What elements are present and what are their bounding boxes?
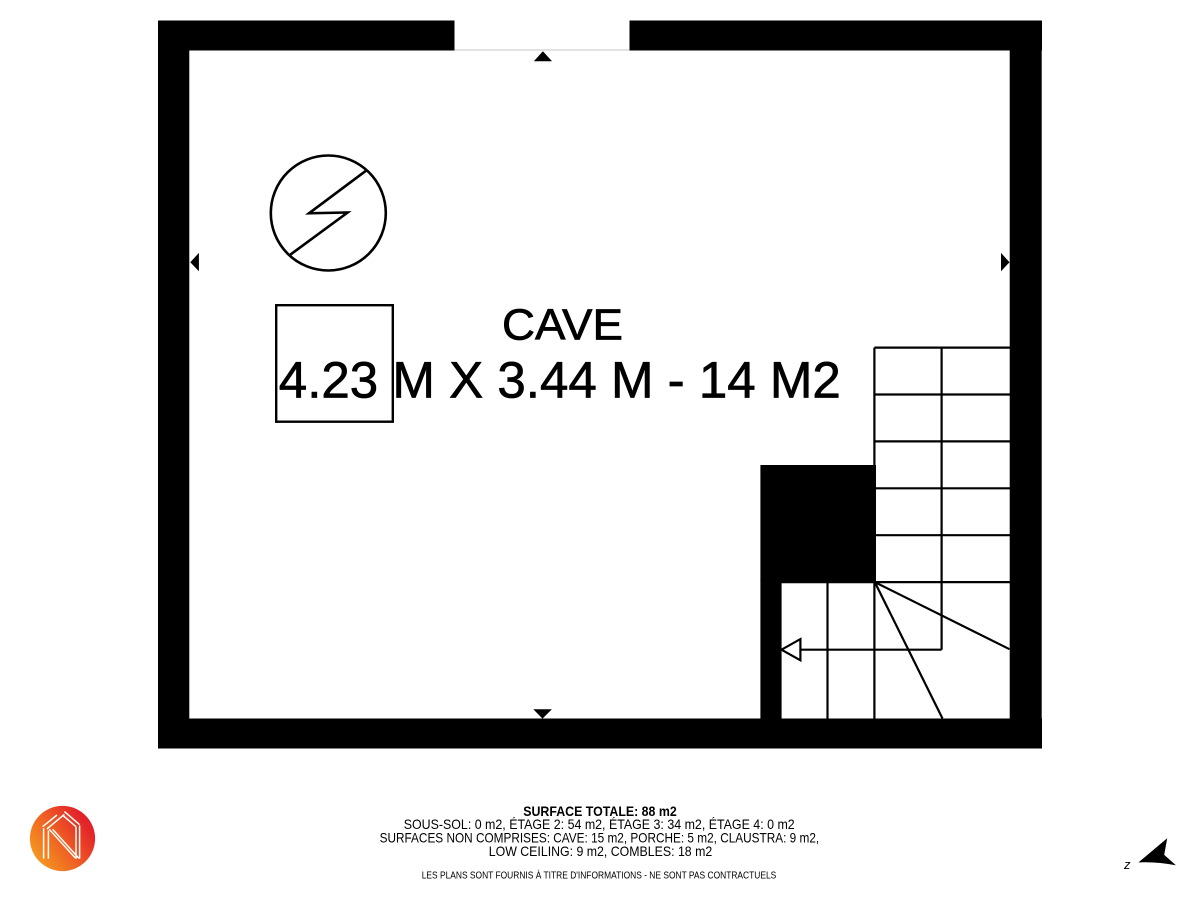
svg-text:LES PLANS SONT FOURNIS À TITRE: LES PLANS SONT FOURNIS À TITRE D'INFORMA…: [422, 868, 777, 881]
svg-text:CAVE: CAVE: [502, 301, 623, 350]
svg-text:LOW CEILING: 9 m2, COMBLES: 18: LOW CEILING: 9 m2, COMBLES: 18 m2: [489, 844, 713, 859]
svg-text:4.23 M X 3.44 M - 14 M2: 4.23 M X 3.44 M - 14 M2: [279, 352, 841, 409]
svg-text:z: z: [1123, 857, 1131, 872]
